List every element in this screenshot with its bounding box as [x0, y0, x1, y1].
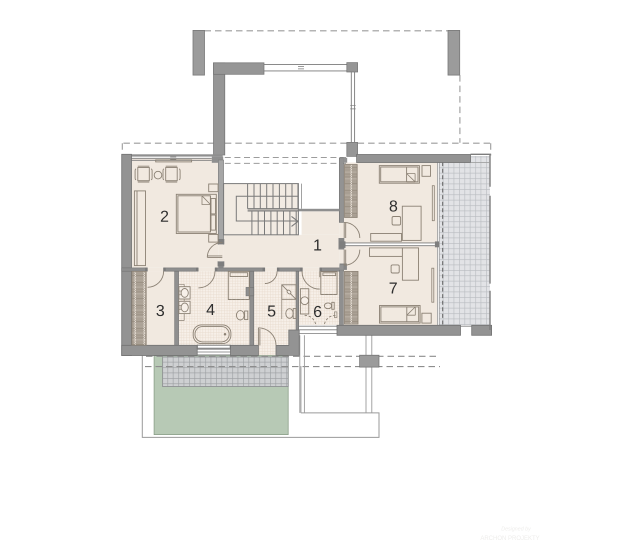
- svg-text:ARCHON PROJEKTY: ARCHON PROJEKTY: [480, 536, 539, 542]
- svg-text:Designed by: Designed by: [501, 527, 531, 533]
